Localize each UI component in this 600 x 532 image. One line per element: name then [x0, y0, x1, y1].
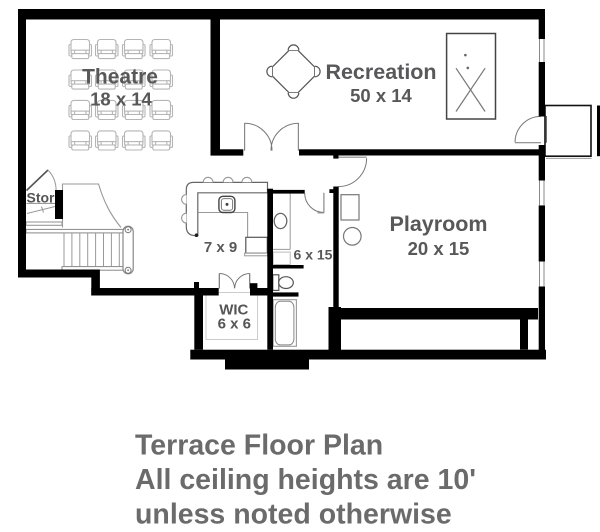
svg-text:6 x 15: 6 x 15 — [294, 247, 333, 263]
svg-text:7 x 9: 7 x 9 — [204, 239, 237, 256]
svg-text:Theatre: Theatre — [82, 66, 158, 89]
svg-text:50 x 14: 50 x 14 — [350, 85, 412, 106]
svg-text:Playroom: Playroom — [390, 212, 488, 236]
svg-text:Terrace Floor Plan: Terrace Floor Plan — [135, 430, 383, 462]
svg-text:Recreation: Recreation — [325, 60, 436, 84]
svg-text:6 x 6: 6 x 6 — [218, 316, 251, 333]
svg-text:18 x 14: 18 x 14 — [90, 88, 152, 109]
svg-text:20 x 15: 20 x 15 — [408, 238, 470, 259]
svg-text:All ceiling heights are 10': All ceiling heights are 10' — [135, 464, 476, 496]
svg-text:unless noted otherwise: unless noted otherwise — [135, 499, 452, 531]
svg-text:Stor: Stor — [27, 190, 56, 206]
